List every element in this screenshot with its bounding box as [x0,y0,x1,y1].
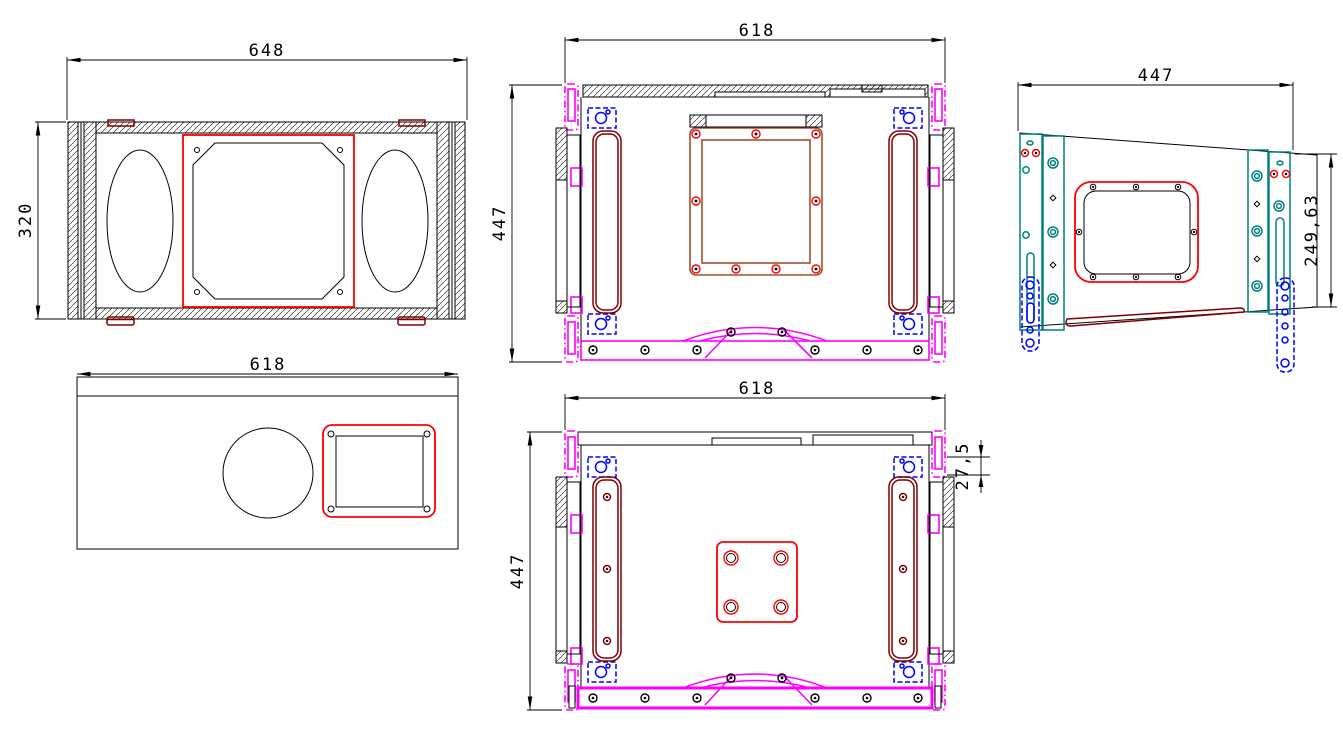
dim-bottom-depth: 447 [508,432,562,710]
dim-side-height-text: 249,63 [1302,193,1322,266]
dim-top-width: 618 [565,21,945,83]
dim-bottom-wall-text: 27,5 [953,442,973,491]
top-driver-frame [690,128,822,275]
bottom-view: 618 447 27,5 [508,379,990,710]
top-front-baffle [583,85,928,97]
bottom-front-baffle [578,432,932,445]
dim-bottom-width: 618 [565,379,945,430]
bottom-handles [593,477,917,661]
dim-top-depth-text: 447 [490,205,510,242]
connector-plate-holes [328,431,430,512]
bottom-panel-view: 618 [77,355,458,549]
dim-front-width: 648 [67,41,467,120]
bracket [894,662,922,682]
dim-bottom-width-text: 618 [739,379,776,399]
connector-plate-cutout [336,436,423,507]
top-corner-brackets [588,108,922,334]
woofer-cutout-marking [183,135,354,307]
bracket [588,314,616,334]
pole-mount-plate [717,542,797,622]
dim-side-width: 447 [1018,66,1293,150]
woofer-frame-octagon [193,143,344,299]
bracket [588,108,616,128]
top-side-plates [556,128,954,313]
panel-outline [77,377,458,549]
bracket [588,662,616,682]
top-rear-rail [581,328,929,361]
dim-front-width-text: 648 [249,41,286,61]
dim-front-height: 320 [16,122,66,319]
bottom-corner-brackets [588,457,922,682]
dim-side-height: 249,63 [1295,154,1337,307]
bottom-side-plates [556,477,954,663]
dim-top-width-text: 618 [739,21,776,41]
frame-screw-holes [692,130,820,273]
bracket [894,314,922,334]
speaker-terminal-circle [223,428,313,518]
bracket [894,457,922,477]
top-rigging-rails [565,84,945,362]
dim-panel-width-text: 618 [250,355,287,375]
side-skid-rail [1066,308,1244,326]
bottom-rear-rail [578,674,932,708]
handle-screws [1076,184,1197,280]
dim-top-depth: 447 [490,85,562,362]
side-left-rails [1020,134,1064,330]
side-handle-cutout [1075,182,1198,282]
dim-side-width-text: 447 [1138,66,1175,86]
port-vent-right [362,150,428,292]
bracket [894,108,922,128]
woofer-mount-holes [195,148,343,295]
cad-drawing-sheet: 648 320 [0,0,1343,730]
front-view: 648 320 [16,41,467,325]
dim-front-height-text: 320 [16,202,36,239]
bracket [588,457,616,477]
connector-plate-marking [323,425,435,517]
dim-bottom-depth-text: 447 [508,553,528,590]
top-handles [593,131,917,313]
side-view: 447 249,63 [1018,66,1337,372]
dim-panel-width: 618 [77,355,458,375]
front-wall-hatching [68,122,465,319]
bottom-rigging-rails [565,431,945,710]
top-brace-bar [690,115,822,127]
front-outer-wall [68,122,465,319]
top-view: 618 447 [490,21,954,362]
cad-canvas: 648 320 [0,0,1343,730]
port-vent-left [107,150,173,292]
